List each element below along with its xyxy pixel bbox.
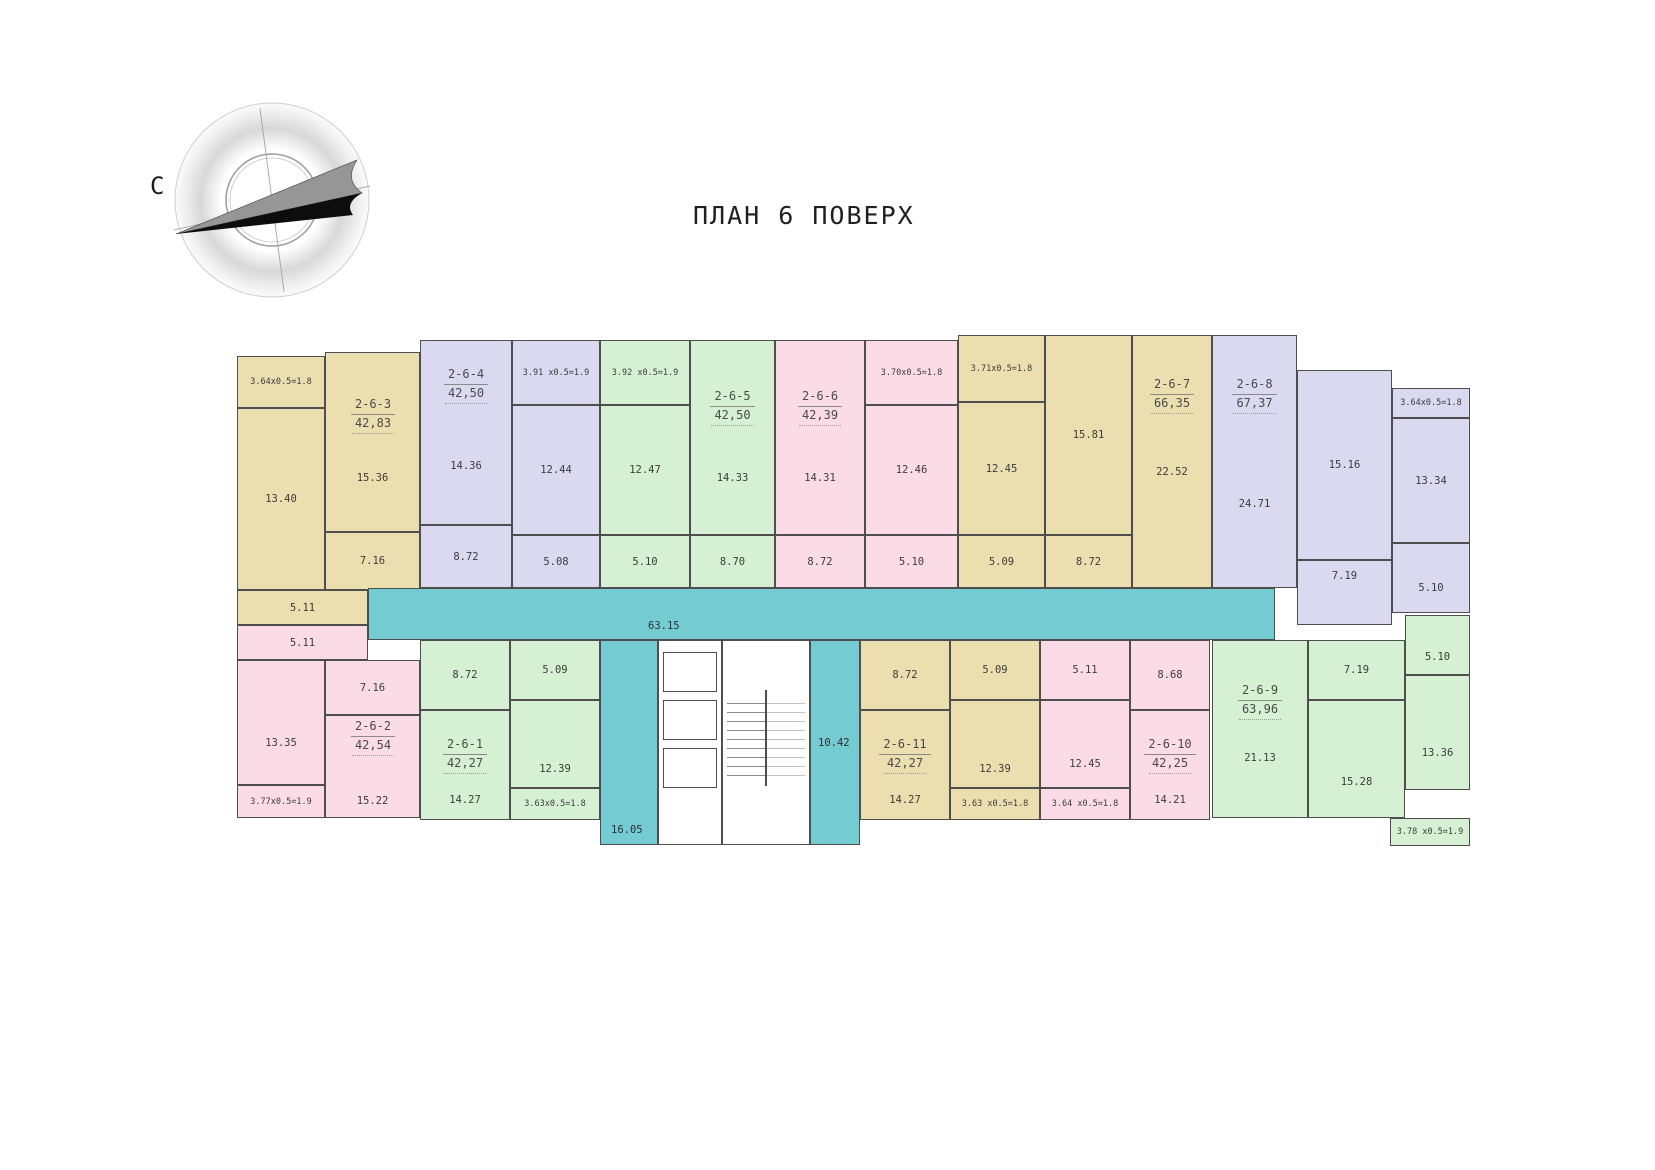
apartment-label: 2-6-2 42,54 [330,718,416,756]
room-label: 5.09 [989,556,1014,568]
room: 8.72 [1045,535,1132,588]
balcony: 3.63 x0.5=1.8 [950,788,1040,820]
balcony-label: 3.64 x0.5=1.8 [1052,799,1119,809]
corridor-label: 63.15 [648,620,680,632]
room: 13.35 [237,660,325,785]
room: 8.68 [1130,640,1210,710]
apartment-id: 2-6-2 [351,718,395,737]
apartment-id: 2-6-11 [879,736,930,755]
room-label: 5.09 [542,664,567,676]
apartment-area: 42,50 [445,385,487,403]
room: 12.44 [512,405,600,535]
balcony-label: 3.77x0.5=1.9 [250,797,311,807]
room-label: 5.10 [1425,651,1450,663]
apartment-label: 2-6-1 42,27 [424,736,506,774]
apartment-area: 42,25 [1149,755,1191,773]
room: 14.31 [775,340,865,535]
room: 12.46 [865,405,958,535]
lobby-label: 16.05 [611,824,643,836]
balcony: 3.91 x0.5=1.9 [512,340,600,405]
room: 12.47 [600,405,690,535]
balcony-label: 3.78 x0.5=1.9 [1397,827,1464,837]
apartment-label: 2-6-9 63,96 [1216,682,1304,720]
apartment-area: 42,27 [444,755,486,773]
apartment-id: 2-6-1 [443,736,487,755]
balcony: 3.64x0.5=1.8 [1392,388,1470,418]
apartment-label: 2-6-6 42,39 [779,388,861,426]
apartment-label: 2-6-11 42,27 [862,736,948,774]
lobby-label: 10.42 [818,737,850,749]
stair-treads [767,695,805,781]
room-label: 5.11 [1072,664,1097,676]
apartment-area: 42,54 [352,737,394,755]
apartment-area: 42,50 [711,407,753,425]
room-label: 8.68 [1157,669,1182,681]
room-label: 13.36 [1422,747,1454,759]
apartment-area: 67,37 [1233,395,1275,413]
room: 5.09 [958,535,1045,588]
room: 12.39 [950,700,1040,788]
balcony-label: 3.91 x0.5=1.9 [523,368,590,378]
room: 5.09 [950,640,1040,700]
room-label: 13.40 [265,493,297,505]
room-label: 14.27 [889,794,921,806]
balcony: 3.64x0.5=1.8 [237,356,325,408]
room-label: 5.10 [899,556,924,568]
room-label: 12.45 [986,463,1018,475]
room: 15.16 [1297,370,1392,560]
room-label: 12.44 [540,464,572,476]
room-label: 14.33 [717,472,749,484]
room: 5.08 [512,535,600,588]
apartment-id: 2-6-3 [351,396,395,415]
room: 15.81 [1045,335,1132,535]
room-label: 7.19 [1344,664,1369,676]
room: 5.10 [865,535,958,588]
room: 22.52 [1132,335,1212,588]
apartment-area: 63,96 [1239,701,1281,719]
room-label: 15.28 [1341,776,1373,788]
room: 5.11 [237,625,368,660]
balcony: 3.64 x0.5=1.8 [1040,788,1130,820]
room: 8.72 [420,525,512,588]
room-label: 22.52 [1156,466,1188,478]
room: 12.45 [958,402,1045,535]
balcony: 3.71x0.5=1.8 [958,335,1045,402]
apartment-id: 2-6-8 [1232,376,1276,395]
balcony-label: 3.64x0.5=1.8 [250,377,311,387]
balcony-label: 3.63 x0.5=1.8 [962,799,1029,809]
balcony: 3.92 x0.5=1.9 [600,340,690,405]
room: 8.70 [690,535,775,588]
room-label: 8.72 [1076,556,1101,568]
apartment-label: 2-6-7 66,35 [1134,376,1210,414]
room: 5.10 [1392,543,1470,613]
room-label: 14.21 [1154,794,1186,806]
room-label: 12.39 [979,763,1011,775]
apartment-id: 2-6-9 [1238,682,1282,701]
room: 12.39 [510,700,600,788]
room: 24.71 [1212,335,1297,588]
room: 5.10 [600,535,690,588]
room-label: 15.81 [1073,429,1105,441]
apartment-id: 2-6-7 [1150,376,1194,395]
apartment-id: 2-6-4 [444,366,488,385]
room: 13.36 [1405,675,1470,790]
room: 7.16 [325,532,420,590]
room-label: 12.39 [539,763,571,775]
stair-treads [727,695,765,781]
room-label: 12.47 [629,464,661,476]
elevator-shaft [663,748,717,788]
room-label: 13.34 [1415,475,1447,487]
room-label: 5.10 [1418,582,1443,594]
room-label: 13.35 [265,737,297,749]
room-label: 12.45 [1069,758,1101,770]
room-label: 8.72 [807,556,832,568]
room: 7.16 [325,660,420,715]
apartment-label: 2-6-3 42,83 [334,396,412,434]
room: 21.13 [1212,640,1308,818]
room: 8.72 [420,640,510,710]
room-label: 21.13 [1244,752,1276,764]
room-label: 15.16 [1329,459,1361,471]
room-label: 8.72 [892,669,917,681]
room: 14.33 [690,340,775,535]
room-label: 8.70 [720,556,745,568]
apartment-label: 2-6-4 42,50 [424,366,508,404]
room-label: 7.16 [360,555,385,567]
apartment-id: 2-6-6 [798,388,842,407]
room: 15.36 [325,352,420,532]
apartment-label: 2-6-10 42,25 [1132,736,1208,774]
room-label: 5.10 [632,556,657,568]
elevator-shaft [663,700,717,740]
balcony-label: 3.63x0.5=1.8 [524,799,585,809]
balcony: 3.63x0.5=1.8 [510,788,600,820]
room-label: 14.31 [804,472,836,484]
apartment-label: 2-6-8 67,37 [1214,376,1295,414]
room-label: 7.19 [1332,570,1357,582]
apartment-id: 2-6-10 [1144,736,1195,755]
room: 8.72 [775,535,865,588]
room-label: 15.36 [357,472,389,484]
elevator-shaft [663,652,717,692]
elevator-lobby [600,640,658,845]
room-label: 5.08 [543,556,568,568]
balcony-label: 3.64x0.5=1.8 [1400,398,1461,408]
room-label: 7.16 [360,682,385,694]
room: 12.45 [1040,700,1130,788]
room: 5.10 [1405,615,1470,675]
room: 8.72 [860,640,950,710]
room: 5.09 [510,640,600,700]
balcony: 3.70x0.5=1.8 [865,340,958,405]
room-label: 14.27 [449,794,481,806]
room: 15.28 [1308,700,1405,818]
room-label: 12.46 [896,464,928,476]
apartment-id: 2-6-5 [710,388,754,407]
room: 7.19 [1308,640,1405,700]
compass-icon [172,100,372,300]
north-label: С [150,172,164,200]
room-label: 8.72 [452,669,477,681]
balcony-label: 3.71x0.5=1.8 [971,364,1032,374]
room-label: 24.71 [1239,498,1271,510]
room-label: 14.36 [450,460,482,472]
apartment-area: 42,27 [884,755,926,773]
balcony-label: 3.92 x0.5=1.9 [612,368,679,378]
room-label: 8.72 [453,551,478,563]
corridor [368,588,1275,640]
apartment-area: 42,39 [799,407,841,425]
stair-divider [765,690,767,786]
room: 5.11 [237,590,368,625]
room: 13.40 [237,408,325,590]
balcony: 3.77x0.5=1.9 [237,785,325,818]
room: 7.19 [1297,560,1392,625]
room-label: 5.11 [290,637,315,649]
room-label: 5.11 [290,602,315,614]
apartment-label: 2-6-5 42,50 [694,388,771,426]
page-title: ПЛАН 6 ПОВЕРХ [693,201,915,230]
balcony-label: 3.70x0.5=1.8 [881,368,942,378]
floor-plan-sheet: С ПЛАН 6 ПОВЕРХ 3.64x0.5=1.8 13.40 15.36… [0,0,1655,1170]
room-label: 15.22 [357,795,389,807]
apartment-area: 42,83 [352,415,394,433]
room: 13.34 [1392,418,1470,543]
apartment-area: 66,35 [1151,395,1193,413]
room: 5.11 [1040,640,1130,700]
room-label: 5.09 [982,664,1007,676]
balcony: 3.78 x0.5=1.9 [1390,818,1470,846]
